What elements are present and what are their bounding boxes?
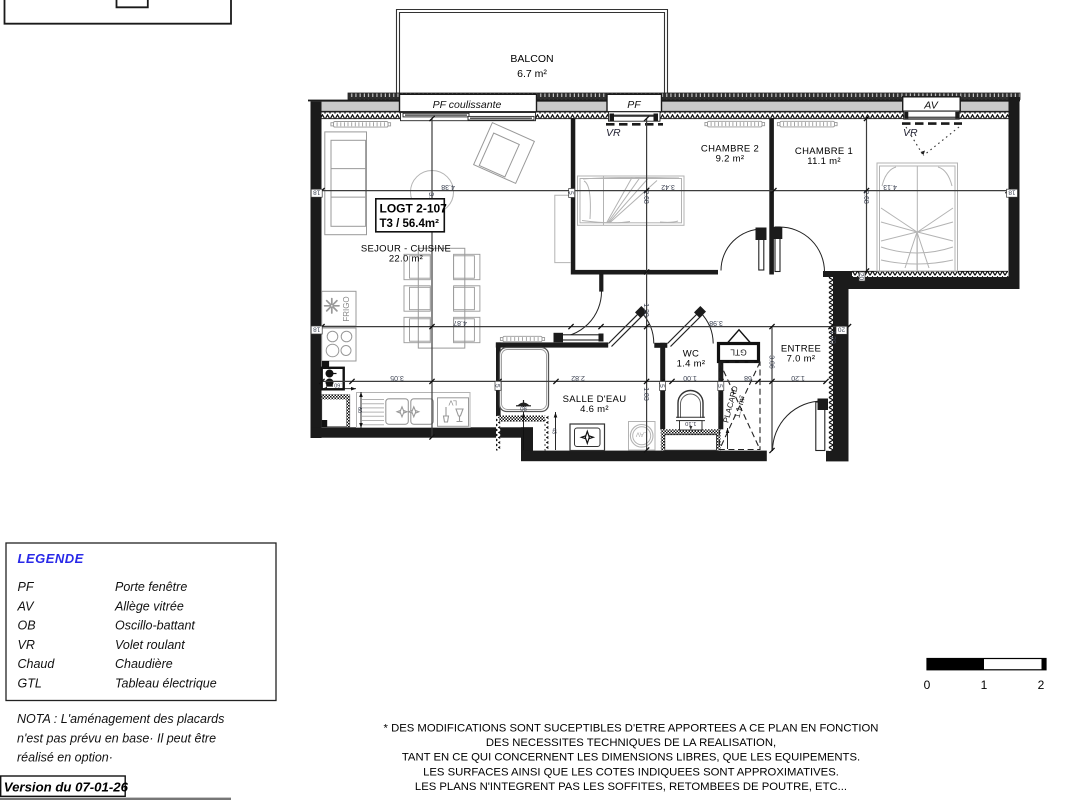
svg-text:Chaud: Chaud <box>18 657 56 671</box>
svg-text:9.2 m²: 9.2 m² <box>716 154 745 165</box>
svg-text:.60: .60 <box>334 381 342 387</box>
svg-text:3.98: 3.98 <box>709 319 723 326</box>
svg-text:1.4 m²: 1.4 m² <box>677 359 706 370</box>
svg-text:LOGT 2-107: LOGT 2-107 <box>380 202 448 216</box>
svg-text:PF: PF <box>18 580 35 594</box>
svg-text:1.20: 1.20 <box>829 330 836 344</box>
svg-text:* DES MODIFICATIONS SONT SUCEP: * DES MODIFICATIONS SONT SUCEPTIBLES D'E… <box>384 723 879 735</box>
svg-text:5: 5 <box>567 191 574 195</box>
svg-text:Chaudière: Chaudière <box>115 657 173 671</box>
svg-text:VR: VR <box>606 127 621 139</box>
svg-text:VR: VR <box>18 638 35 652</box>
svg-text:3.06: 3.06 <box>768 355 775 369</box>
svg-text:2.82: 2.82 <box>571 374 585 381</box>
svg-text:20: 20 <box>857 273 864 281</box>
svg-text:3.05: 3.05 <box>390 374 404 381</box>
svg-text:TANT EN CE QUI CONCERNENT LES: TANT EN CE QUI CONCERNENT LES DIMENSIONS… <box>402 752 860 764</box>
svg-text:GTL: GTL <box>730 348 747 358</box>
svg-text:20: 20 <box>838 326 846 333</box>
svg-text:NOTA : L'aménagement des placa: NOTA : L'aménagement des placards <box>17 712 224 726</box>
svg-text:6.7 m²: 6.7 m² <box>517 68 547 80</box>
svg-text:2.68: 2.68 <box>642 190 649 204</box>
svg-text:3.42: 3.42 <box>661 183 675 190</box>
svg-text:PF: PF <box>627 99 641 111</box>
svg-text:4.13: 4.13 <box>883 183 897 190</box>
svg-text:Porte fenêtre: Porte fenêtre <box>115 580 187 594</box>
svg-text:LES PLANS N'INTEGRENT PAS LES: LES PLANS N'INTEGRENT PAS LES SOFFITES, … <box>415 781 847 793</box>
svg-text:1.20: 1.20 <box>642 303 649 317</box>
svg-text:1.00: 1.00 <box>683 374 697 381</box>
svg-text:PF coulissante: PF coulissante <box>433 99 502 111</box>
svg-text:1.10: 1.10 <box>685 420 696 426</box>
svg-text:5: 5 <box>716 384 723 388</box>
svg-text:4.87: 4.87 <box>453 319 467 326</box>
svg-text:60: 60 <box>356 407 362 413</box>
svg-text:11.1 m²: 11.1 m² <box>807 156 841 167</box>
svg-text:LES SURFACES AINSI QUE LES COT: LES SURFACES AINSI QUE LES COTES INDIQUE… <box>423 766 839 778</box>
svg-text:AV: AV <box>923 100 938 112</box>
svg-text:VR: VR <box>903 127 918 139</box>
svg-text:7.0 m²: 7.0 m² <box>787 354 816 365</box>
svg-text:Version du 07-01-26: Version du 07-01-26 <box>4 780 129 795</box>
svg-text:5: 5 <box>658 384 665 388</box>
svg-text:n'est pas prévu en base· Il pe: n'est pas prévu en base· Il peut être <box>17 731 216 745</box>
svg-text:4.6 m²: 4.6 m² <box>580 404 609 415</box>
svg-text:FRIGO: FRIGO <box>342 296 351 321</box>
svg-text:4.38: 4.38 <box>441 183 455 190</box>
svg-text:BALCON: BALCON <box>510 53 553 65</box>
svg-text:T3 / 56.4m²: T3 / 56.4m² <box>380 218 440 230</box>
svg-text:1: 1 <box>981 678 988 692</box>
svg-text:réalisé en option·: réalisé en option· <box>17 751 113 765</box>
svg-text:18: 18 <box>313 325 321 332</box>
svg-text:1.20: 1.20 <box>791 374 805 381</box>
svg-text:LEGENDE: LEGENDE <box>18 551 84 566</box>
svg-text:1.83: 1.83 <box>642 387 649 401</box>
svg-text:2: 2 <box>1038 678 1045 692</box>
svg-text:Tableau électrique: Tableau électrique <box>115 677 217 691</box>
svg-text:LV: LV <box>448 398 457 407</box>
svg-text:68: 68 <box>744 374 752 381</box>
svg-text:90: 90 <box>520 404 527 410</box>
svg-text:Volet roulant: Volet roulant <box>115 638 185 652</box>
svg-text:22.0 m²: 22.0 m² <box>389 253 423 264</box>
svg-text:18: 18 <box>1008 189 1016 196</box>
svg-text:2.68: 2.68 <box>862 190 869 204</box>
svg-text:DES NECESSITES TECHNIQUES DE L: DES NECESSITES TECHNIQUES DE LA REALISAT… <box>486 737 776 749</box>
svg-text:AV: AV <box>17 599 36 613</box>
svg-text:18: 18 <box>313 189 321 196</box>
svg-text:GTL: GTL <box>18 677 42 691</box>
svg-text:5: 5 <box>493 384 500 388</box>
svg-text:LAV: LAV <box>635 430 647 437</box>
svg-text:43: 43 <box>551 428 557 434</box>
svg-text:Oscillo-battant: Oscillo-battant <box>115 619 195 633</box>
svg-text:OB: OB <box>18 619 36 633</box>
svg-text:Allège vitrée: Allège vitrée <box>114 599 184 613</box>
svg-text:0: 0 <box>924 678 931 692</box>
